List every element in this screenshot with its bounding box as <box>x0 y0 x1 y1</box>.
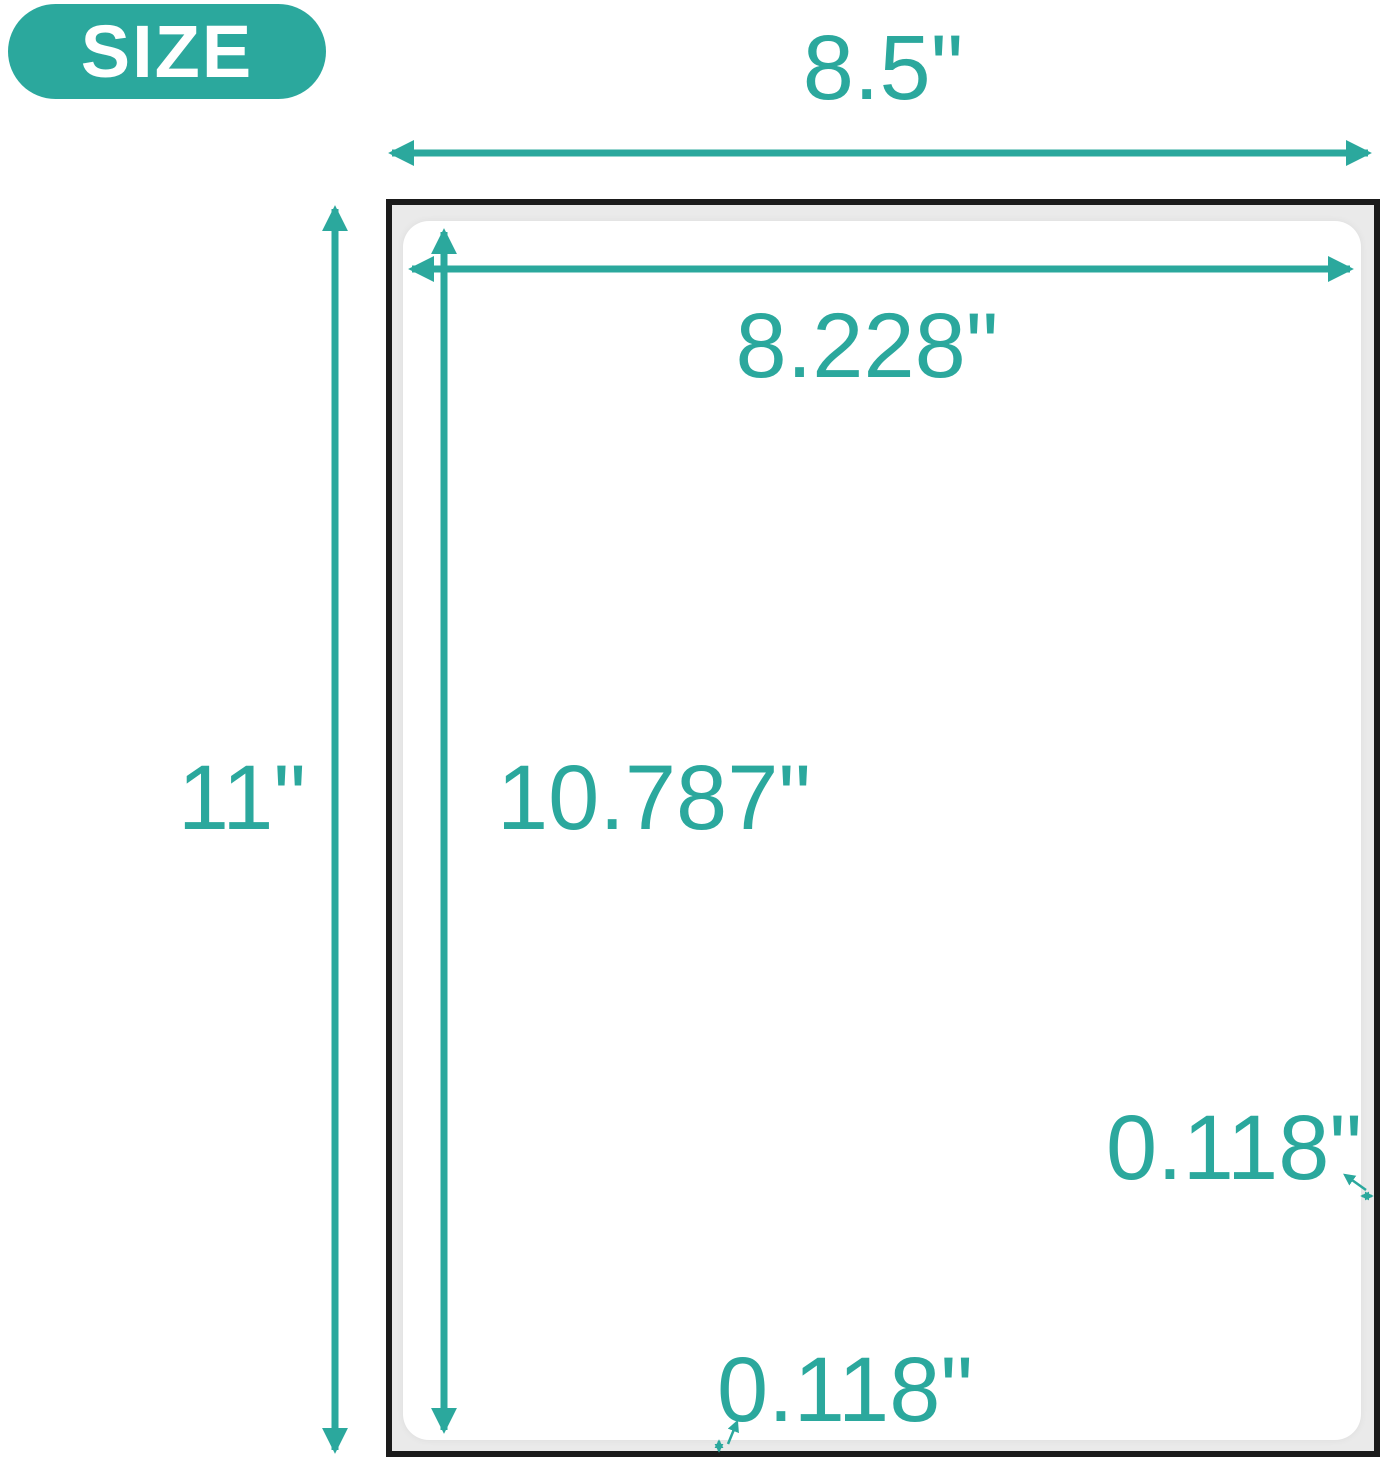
sheet-height-label: 11" <box>178 752 306 844</box>
label-width-label: 8.228" <box>736 300 999 392</box>
label-height-label: 10.787" <box>497 752 811 844</box>
size-diagram: SIZE 8.5" 11" 8.228" 10.787" 0 <box>0 0 1386 1472</box>
size-badge-label: SIZE <box>81 9 253 94</box>
margin-bottom-label: 0.118" <box>717 1344 973 1436</box>
sheet-width-label: 8.5" <box>803 22 964 114</box>
size-badge: SIZE <box>8 4 326 99</box>
margin-right-label: 0.118" <box>1106 1102 1362 1194</box>
